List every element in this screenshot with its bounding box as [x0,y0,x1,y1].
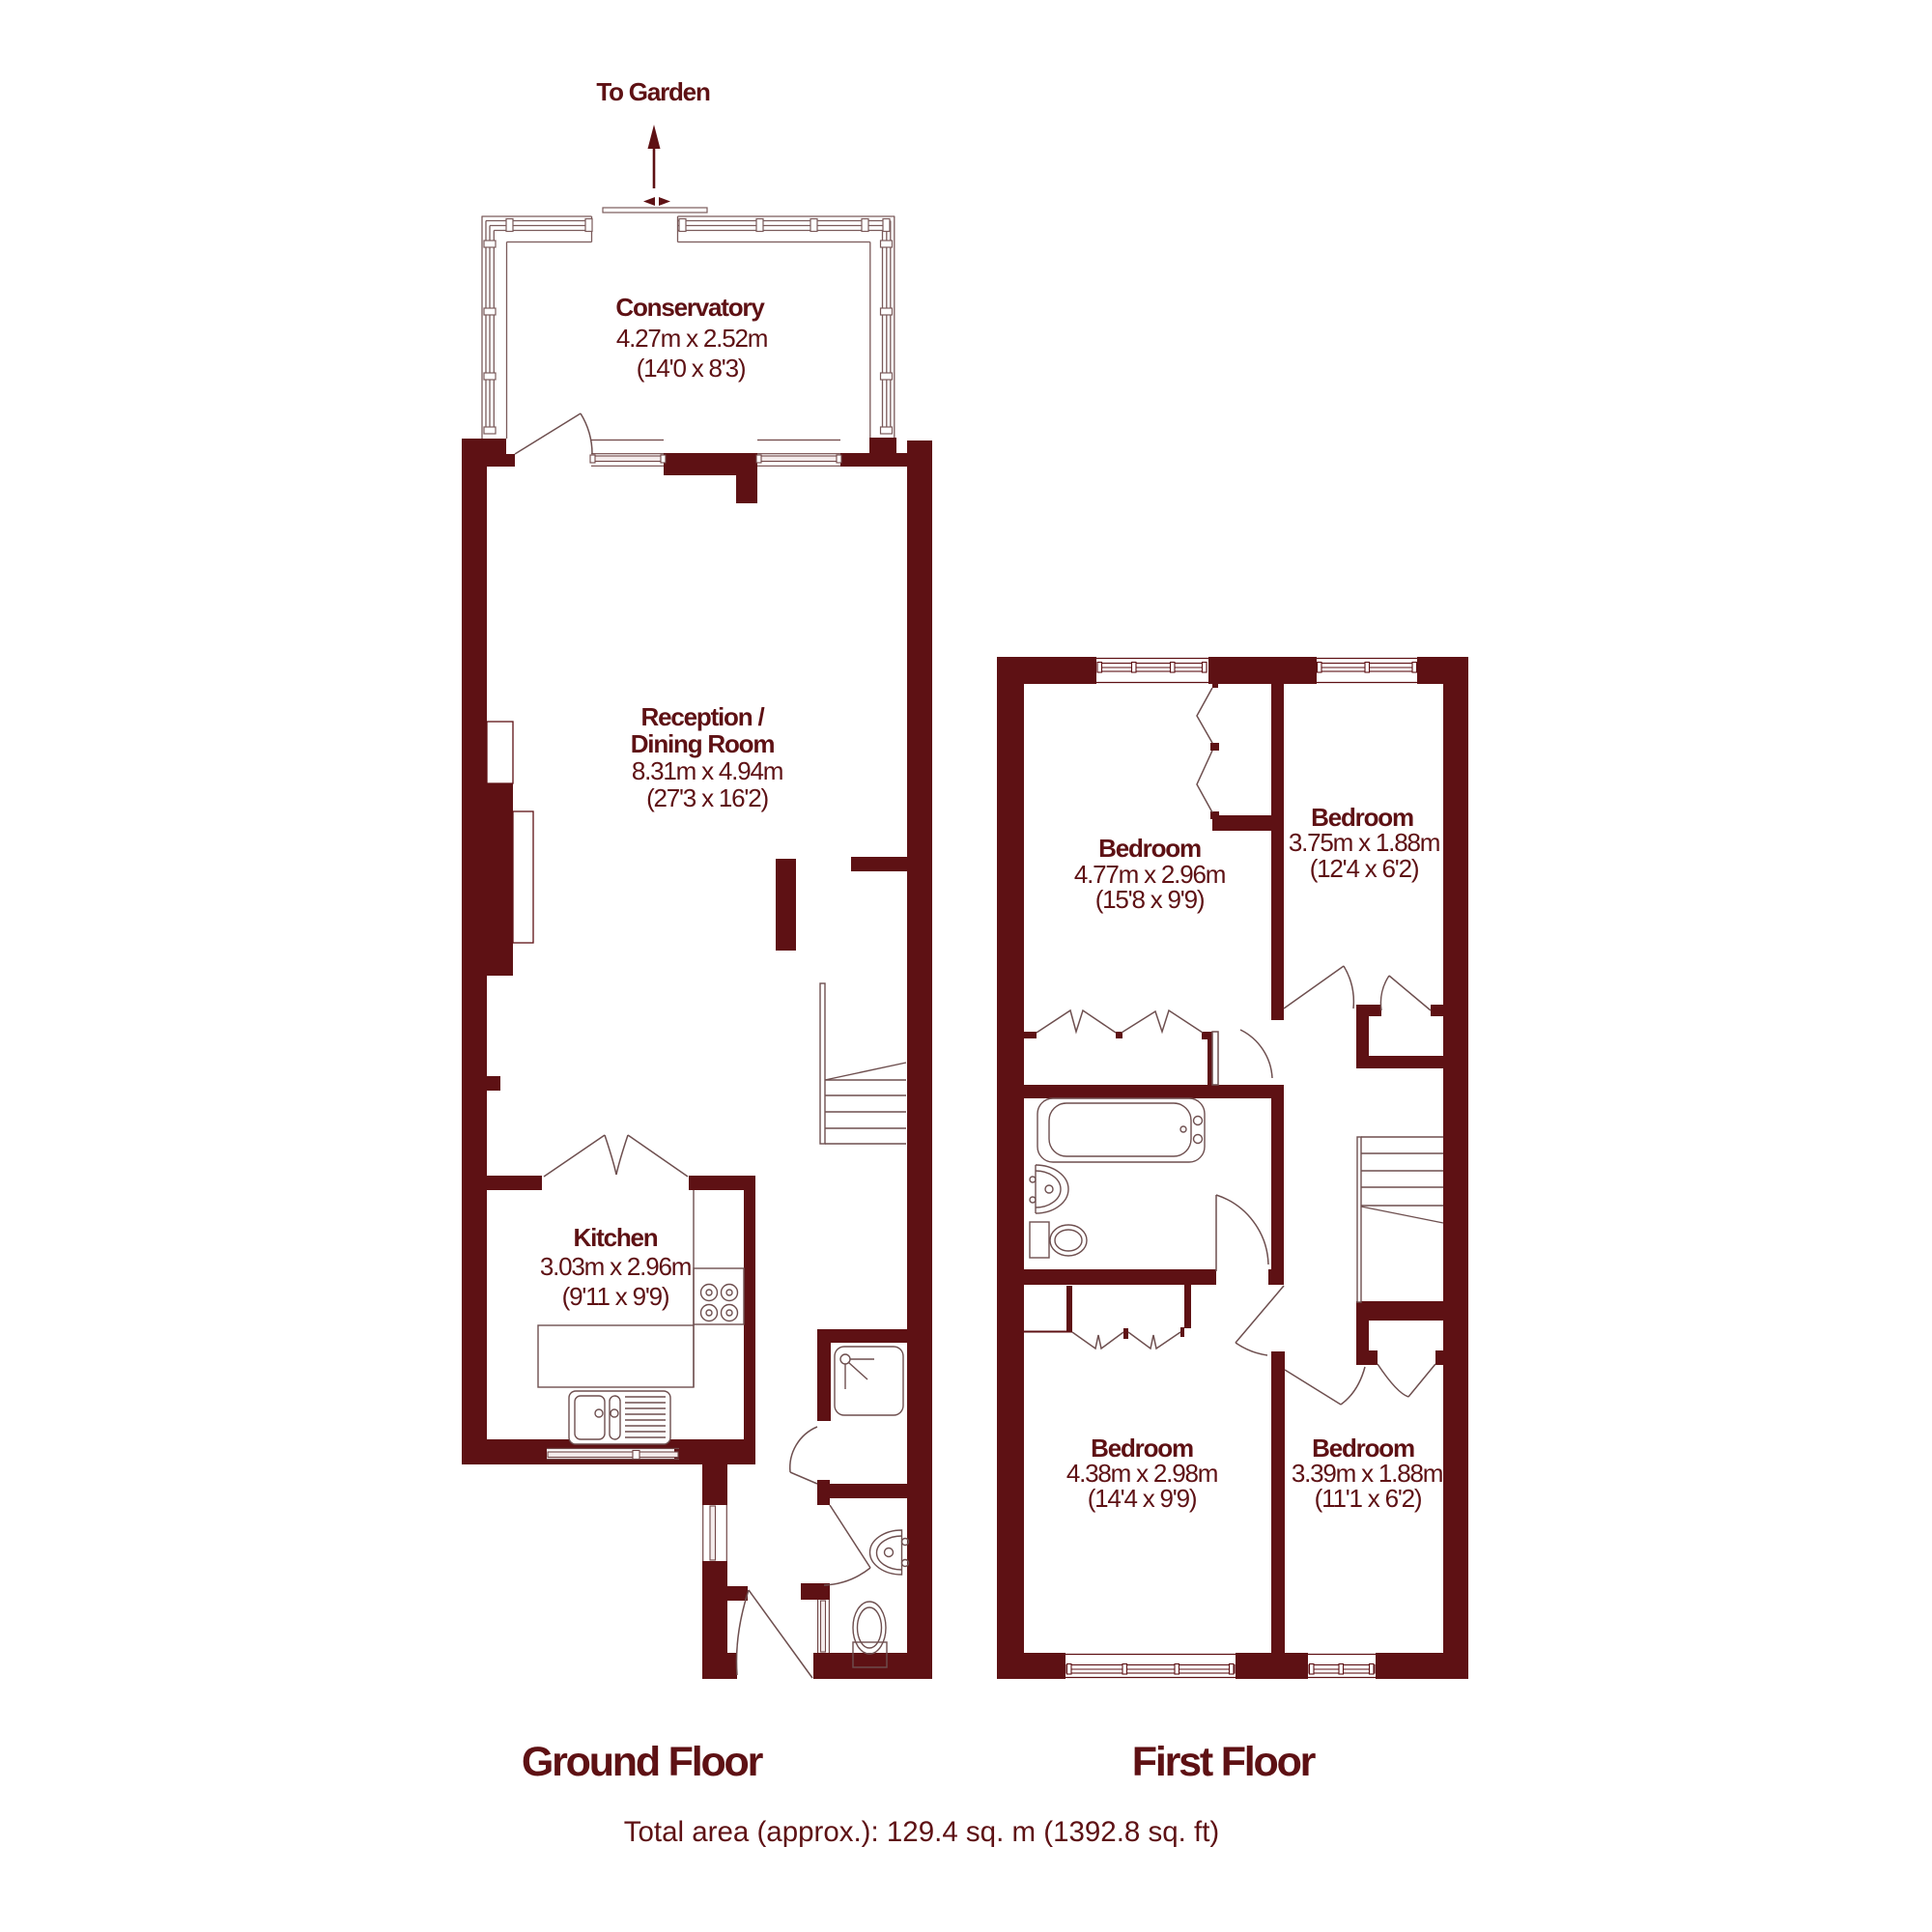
svg-text:First Floor: First Floor [1132,1739,1317,1785]
svg-text:Kitchen: Kitchen [574,1223,658,1252]
svg-text:Dining Room: Dining Room [631,729,775,758]
svg-text:To Garden: To Garden [596,77,710,106]
svg-text:(12'4 x 6'2): (12'4 x 6'2) [1310,854,1419,883]
svg-text:Ground Floor: Ground Floor [522,1739,764,1785]
svg-text:(27'3 x 16'2): (27'3 x 16'2) [646,783,768,812]
svg-text:3.75m x 1.88m: 3.75m x 1.88m [1289,828,1439,857]
svg-text:Total area (approx.): 129.4 sq: Total area (approx.): 129.4 sq. m (1392.… [624,1816,1220,1848]
svg-text:(9'11 x 9'9): (9'11 x 9'9) [562,1282,669,1311]
svg-text:8.31m x 4.94m: 8.31m x 4.94m [632,756,782,785]
svg-text:(14'4 x 9'9): (14'4 x 9'9) [1088,1484,1197,1513]
svg-text:Reception /: Reception / [641,702,765,731]
svg-text:3.03m x 2.96m: 3.03m x 2.96m [540,1252,691,1281]
svg-text:Conservatory: Conservatory [615,293,765,322]
svg-text:(14'0 x 8'3): (14'0 x 8'3) [637,354,746,383]
svg-text:Bedroom: Bedroom [1098,834,1201,863]
svg-text:(11'1 x 6'2): (11'1 x 6'2) [1315,1484,1422,1513]
svg-text:(15'8 x 9'9): (15'8 x 9'9) [1095,885,1205,914]
svg-text:4.27m x 2.52m: 4.27m x 2.52m [616,324,767,353]
